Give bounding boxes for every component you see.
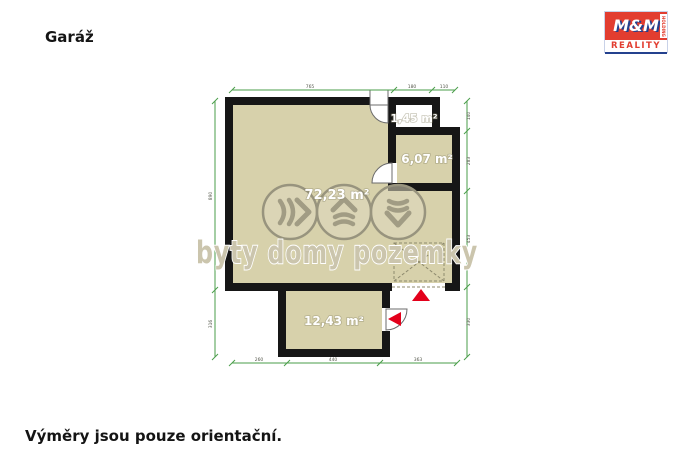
dim-bottom-right: 363 bbox=[414, 357, 423, 363]
entry-room-area-label: 1,45 m² bbox=[390, 112, 437, 125]
logo-holding-text: HOLDING bbox=[660, 14, 667, 38]
annex-room-area-label: 12,43 m² bbox=[304, 314, 364, 328]
page-title: Garáž bbox=[45, 28, 94, 46]
logo-reality-text: REALITY bbox=[605, 40, 667, 54]
logo-red-box: M&M HOLDING bbox=[605, 12, 667, 40]
dim-top-right: 110 bbox=[440, 84, 449, 90]
floorplan-page: Garáž M&M HOLDING REALITY bbox=[0, 0, 686, 457]
storage-room-area-label: 6,07 m² bbox=[401, 152, 453, 166]
dim-top-mid: 180 bbox=[408, 84, 417, 90]
dim-top-left: 765 bbox=[306, 84, 315, 90]
mm-reality-logo: M&M HOLDING REALITY bbox=[604, 11, 668, 53]
dim-left-upper: 890 bbox=[208, 192, 214, 201]
dim-right-2: 283 bbox=[466, 157, 472, 166]
logo-mm-text: M&M bbox=[613, 18, 659, 34]
dim-right-1: 140 bbox=[466, 112, 472, 121]
watermark-text: byty domy pozemky bbox=[196, 235, 478, 271]
floorplan-drawing: 765 180 110 890 316 140 283 453 330 260 … bbox=[0, 0, 686, 457]
footer-note: Výměry jsou pouze orientační. bbox=[25, 427, 282, 445]
entrance-markers bbox=[388, 289, 430, 326]
dim-left-lower: 316 bbox=[208, 320, 214, 329]
garage-entrance-arrow-icon bbox=[412, 289, 430, 301]
dim-bottom-mid: 440 bbox=[329, 357, 338, 363]
dim-bottom-left: 260 bbox=[255, 357, 264, 363]
main-room-area-label: 72,23 m² bbox=[305, 188, 370, 203]
dim-right-4: 330 bbox=[466, 318, 472, 327]
